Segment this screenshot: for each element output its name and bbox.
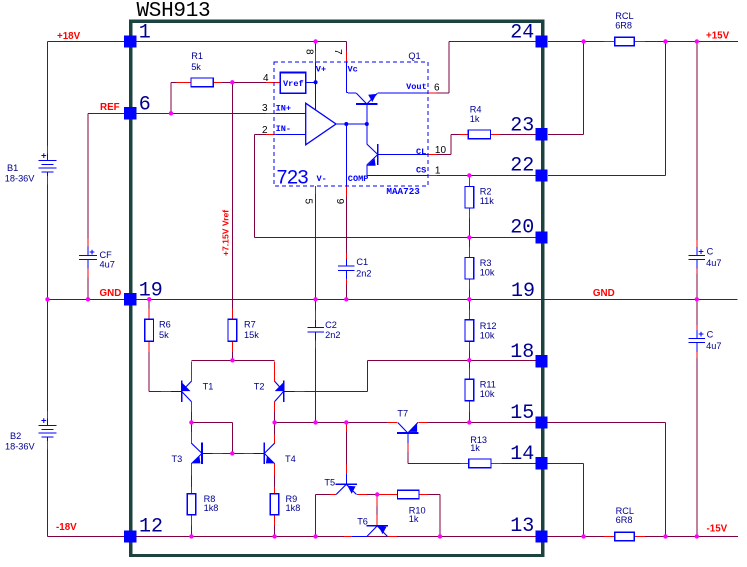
svg-text:6R8: 6R8 — [615, 21, 632, 31]
svg-text:Vc: Vc — [348, 65, 358, 75]
svg-text:R12: R12 — [480, 321, 497, 331]
svg-text:+15V: +15V — [706, 31, 730, 42]
svg-text:1: 1 — [435, 166, 441, 177]
svg-text:R3: R3 — [480, 258, 492, 268]
svg-text:R4: R4 — [470, 104, 482, 114]
svg-text:+18V: +18V — [57, 31, 81, 42]
svg-text:5k: 5k — [159, 330, 169, 340]
svg-text:B2: B2 — [10, 431, 21, 441]
svg-text:1k: 1k — [409, 514, 419, 524]
svg-text:22: 22 — [510, 155, 534, 178]
svg-text:R7: R7 — [244, 319, 256, 329]
svg-text:2: 2 — [262, 125, 268, 136]
svg-text:B1: B1 — [7, 163, 18, 173]
svg-text:T4: T4 — [285, 454, 296, 464]
svg-text:1k: 1k — [470, 443, 480, 453]
svg-text:3: 3 — [262, 103, 268, 114]
svg-text:1k8: 1k8 — [286, 503, 301, 513]
svg-text:6: 6 — [434, 82, 440, 93]
svg-text:19: 19 — [511, 280, 535, 303]
svg-text:15: 15 — [510, 402, 534, 425]
svg-text:10k: 10k — [480, 389, 495, 399]
svg-text:+7.15V Vref: +7.15V Vref — [221, 210, 231, 256]
svg-text:T7: T7 — [397, 409, 408, 419]
svg-text:5k: 5k — [191, 62, 201, 72]
svg-text:11k: 11k — [480, 196, 495, 206]
svg-text:4u7: 4u7 — [706, 258, 721, 268]
svg-text:C1: C1 — [356, 257, 368, 267]
svg-text:14: 14 — [510, 443, 534, 466]
svg-text:Q1: Q1 — [408, 51, 420, 61]
svg-text:18-36V: 18-36V — [5, 173, 35, 183]
svg-text:C: C — [707, 247, 714, 257]
svg-text:7: 7 — [332, 49, 343, 55]
svg-text:R2: R2 — [480, 187, 492, 197]
svg-text:6R8: 6R8 — [616, 515, 633, 525]
svg-text:+: + — [698, 247, 704, 258]
svg-text:IN-: IN- — [276, 124, 291, 134]
svg-text:V-: V- — [317, 174, 327, 184]
svg-text:GND: GND — [593, 288, 615, 299]
svg-text:RCL: RCL — [615, 11, 633, 21]
svg-text:15k: 15k — [244, 330, 259, 340]
svg-text:18-36V: 18-36V — [5, 441, 35, 451]
svg-text:GND: GND — [100, 288, 122, 299]
svg-text:-15V: -15V — [707, 523, 728, 534]
svg-text:10k: 10k — [480, 331, 495, 341]
svg-text:10: 10 — [435, 145, 447, 156]
svg-text:CF: CF — [100, 250, 113, 260]
svg-text:4u7: 4u7 — [706, 341, 721, 351]
svg-text:+: + — [41, 150, 47, 161]
svg-text:V+: V+ — [316, 65, 326, 75]
svg-text:Vout: Vout — [406, 82, 427, 92]
svg-text:R6: R6 — [159, 319, 171, 329]
svg-text:T6: T6 — [357, 516, 368, 526]
svg-text:2n2: 2n2 — [325, 330, 340, 340]
svg-text:T3: T3 — [172, 454, 183, 464]
svg-text:+: + — [41, 415, 47, 426]
svg-text:20: 20 — [510, 217, 534, 240]
svg-text:13: 13 — [510, 515, 534, 538]
svg-text:4u7: 4u7 — [100, 260, 115, 270]
svg-text:23: 23 — [510, 114, 534, 137]
svg-text:+: + — [89, 247, 95, 258]
svg-text:10k: 10k — [480, 268, 495, 278]
svg-text:WSH913: WSH913 — [137, 0, 211, 23]
svg-text:24: 24 — [510, 22, 534, 45]
svg-text:C: C — [707, 329, 714, 339]
svg-text:T2: T2 — [254, 381, 265, 391]
svg-text:1: 1 — [139, 22, 151, 45]
svg-text:1k: 1k — [470, 114, 480, 124]
svg-text:R1: R1 — [191, 51, 203, 61]
svg-text:-18V: -18V — [56, 522, 77, 533]
svg-text:2n2: 2n2 — [356, 269, 371, 279]
svg-text:IN+: IN+ — [276, 104, 291, 114]
svg-text:6: 6 — [139, 93, 151, 116]
svg-text:R11: R11 — [480, 379, 496, 389]
svg-text:5: 5 — [303, 199, 314, 205]
svg-text:8: 8 — [303, 49, 314, 55]
svg-text:T5: T5 — [324, 477, 335, 487]
svg-text:723: 723 — [276, 167, 308, 190]
svg-text:1k8: 1k8 — [204, 503, 219, 513]
svg-text:CS: CS — [416, 165, 426, 175]
svg-text:9: 9 — [334, 199, 345, 205]
svg-text:T1: T1 — [203, 381, 214, 391]
svg-text:MAA723: MAA723 — [386, 186, 420, 197]
svg-text:CL: CL — [416, 147, 426, 157]
svg-text:Vref: Vref — [283, 79, 304, 89]
svg-text:12: 12 — [139, 516, 163, 539]
svg-text:+: + — [698, 329, 704, 340]
svg-text:REF: REF — [100, 102, 120, 113]
svg-text:COMP: COMP — [348, 174, 369, 184]
svg-text:C2: C2 — [325, 320, 337, 330]
svg-text:4: 4 — [263, 73, 269, 84]
svg-text:18: 18 — [510, 341, 534, 364]
